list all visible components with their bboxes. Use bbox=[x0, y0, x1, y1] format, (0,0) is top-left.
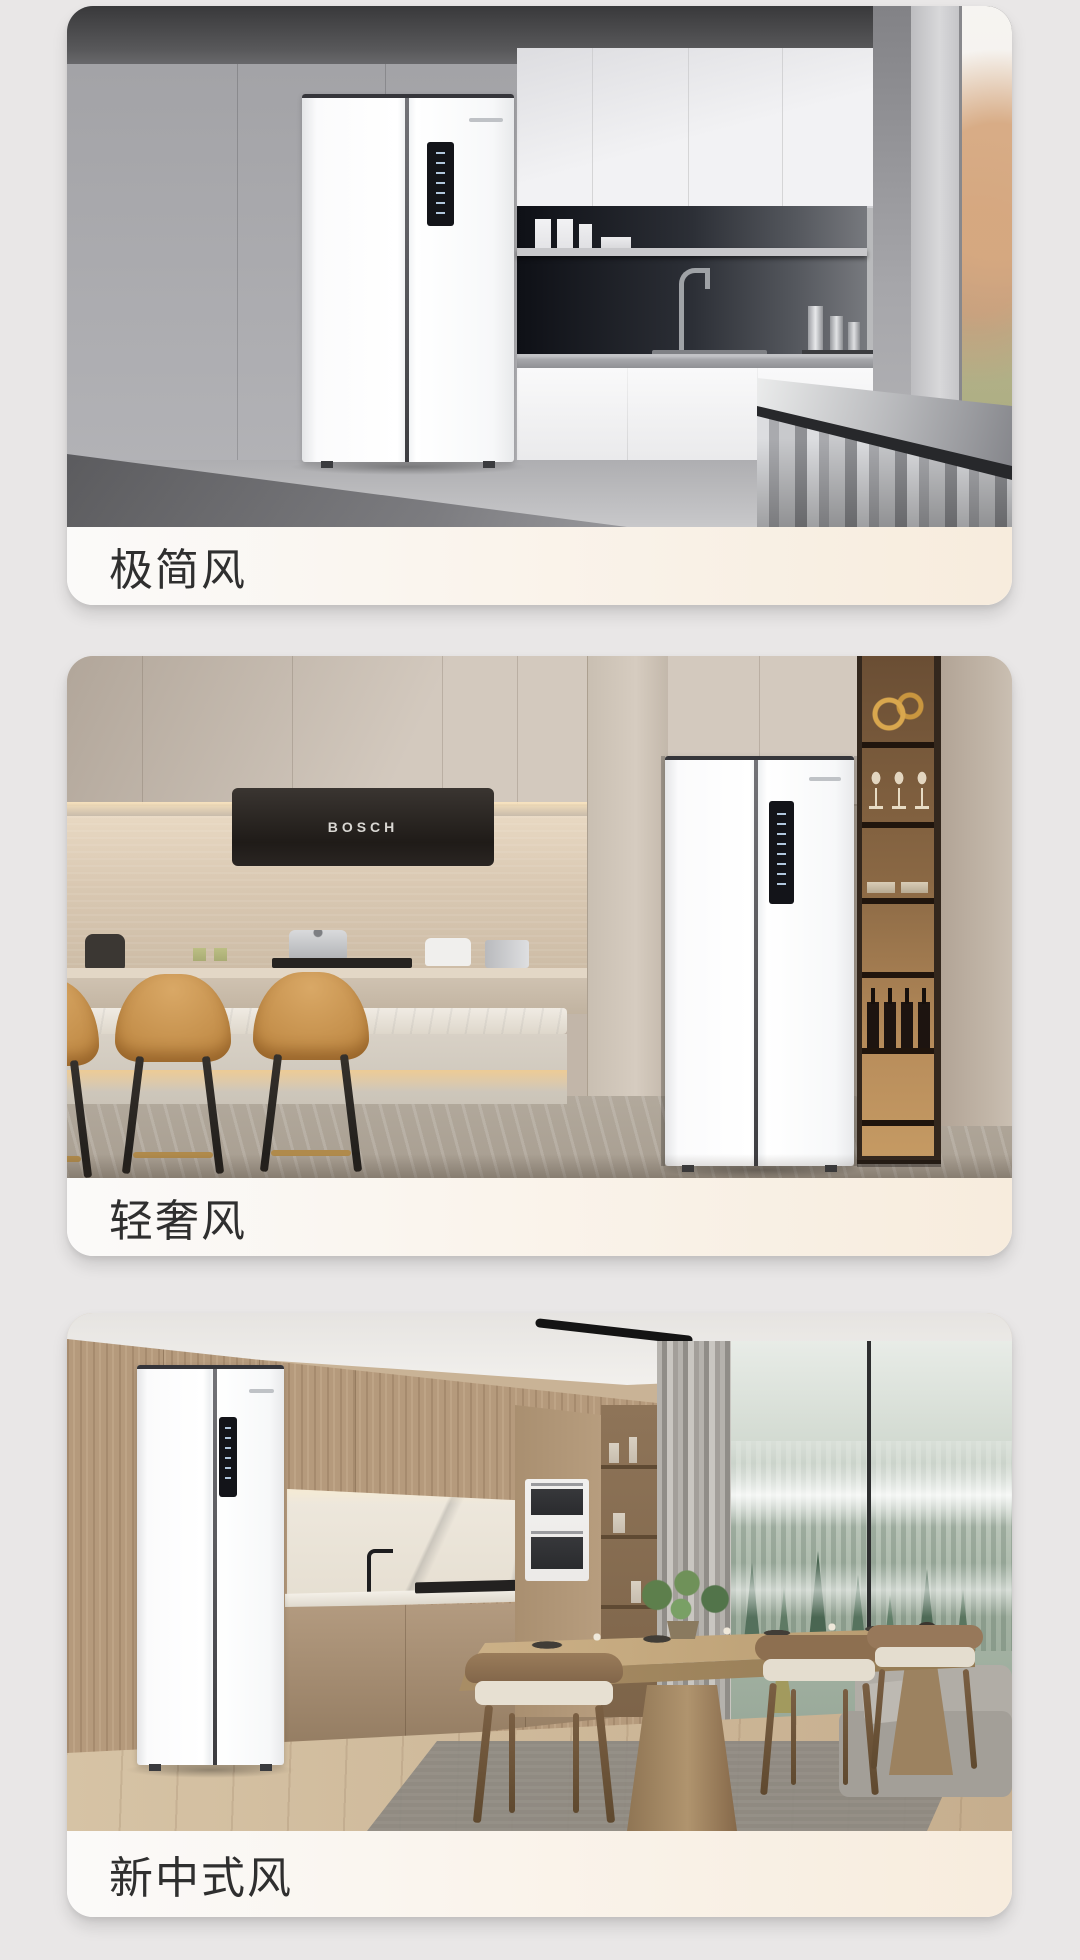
tall-beige-cabinet bbox=[587, 656, 668, 1164]
refrigerator-control-panel bbox=[427, 142, 454, 227]
refrigerator-door-gap bbox=[213, 1369, 217, 1765]
style-label-text: 极简风 bbox=[109, 534, 247, 598]
wine-glasses bbox=[865, 766, 933, 822]
chair-leg bbox=[509, 1713, 515, 1813]
refrigerator-foot bbox=[149, 1764, 161, 1771]
green-cups bbox=[193, 946, 233, 962]
kitchen-photo-new-chinese bbox=[67, 1313, 1012, 1831]
style-label: 新中式风 bbox=[67, 1831, 1012, 1917]
rice-cooker bbox=[425, 938, 471, 966]
bar-stool bbox=[253, 972, 369, 1174]
mist-band bbox=[731, 1563, 1012, 1617]
chair-back bbox=[867, 1625, 983, 1649]
bar-stool-back bbox=[67, 978, 99, 1066]
coffee-machine bbox=[485, 940, 529, 968]
chair-back bbox=[755, 1635, 885, 1661]
page: 极简风 BOSCH bbox=[0, 0, 1080, 1960]
refrigerator-door-gap bbox=[754, 760, 758, 1166]
refrigerator bbox=[665, 756, 854, 1166]
white-canisters bbox=[529, 218, 641, 248]
chair-leg bbox=[760, 1683, 777, 1795]
chair-leg bbox=[871, 1669, 886, 1769]
refrigerator bbox=[302, 94, 514, 462]
chair-leg bbox=[573, 1713, 579, 1813]
built-in-oven bbox=[525, 1479, 589, 1581]
refrigerator-control-panel bbox=[219, 1417, 237, 1497]
refrigerator-brand-logo bbox=[809, 777, 841, 781]
kitchen-photo-minimalist bbox=[67, 6, 1012, 527]
chair-leg bbox=[791, 1689, 796, 1785]
refrigerator-top-trim bbox=[137, 1365, 284, 1369]
kitchen-photo-light-luxury: BOSCH bbox=[67, 656, 1012, 1178]
countertop bbox=[517, 354, 897, 368]
chair-leg bbox=[963, 1669, 978, 1769]
window-autumn-view bbox=[962, 6, 1012, 446]
refrigerator-top-trim bbox=[665, 756, 854, 760]
dining-chair bbox=[465, 1653, 623, 1831]
style-label-text: 新中式风 bbox=[109, 1842, 293, 1906]
bar-stool bbox=[67, 978, 99, 1178]
chair-leg bbox=[843, 1689, 848, 1785]
refrigerator-foot bbox=[260, 1764, 272, 1771]
floating-shelf bbox=[517, 248, 867, 256]
bar-stool-back bbox=[115, 974, 231, 1062]
chair-cushion bbox=[475, 1681, 613, 1705]
chair-cushion bbox=[763, 1659, 875, 1681]
refrigerator-brand-logo bbox=[469, 118, 503, 122]
dining-chair bbox=[867, 1625, 983, 1775]
style-label: 轻奢风 bbox=[67, 1178, 1012, 1256]
refrigerator-brand-logo bbox=[249, 1389, 274, 1393]
bowls bbox=[865, 874, 933, 898]
gold-ring-sculpture bbox=[867, 682, 929, 738]
style-card-new-chinese: 新中式风 bbox=[67, 1313, 1012, 1917]
refrigerator-body bbox=[665, 756, 854, 1166]
style-label: 极简风 bbox=[67, 527, 1012, 605]
mist-band bbox=[731, 1463, 1012, 1527]
refrigerator-foot bbox=[321, 461, 333, 468]
refrigerator bbox=[137, 1365, 284, 1765]
refrigerator-door-gap bbox=[405, 98, 409, 462]
metal-canisters bbox=[802, 302, 877, 356]
plant-centerpiece bbox=[623, 1561, 743, 1627]
bar-stool bbox=[115, 974, 231, 1176]
black-faucet bbox=[367, 1549, 393, 1593]
wine-bottles bbox=[865, 988, 933, 1048]
refrigerator-control-panel bbox=[769, 801, 794, 904]
refrigerator-body bbox=[137, 1365, 284, 1765]
black-kettle bbox=[85, 934, 125, 970]
style-card-light-luxury: BOSCH bbox=[67, 656, 1012, 1256]
chair-back bbox=[465, 1653, 623, 1683]
upper-white-cabinets bbox=[517, 48, 873, 208]
chair-cushion bbox=[875, 1647, 975, 1667]
chair-leg bbox=[473, 1705, 493, 1823]
cooktop bbox=[272, 958, 412, 968]
side-wall bbox=[941, 656, 1012, 1126]
bar-stool-back bbox=[253, 972, 369, 1060]
dining-chair bbox=[755, 1635, 885, 1805]
refrigerator-foot bbox=[483, 461, 495, 468]
style-card-minimalist: 极简风 bbox=[67, 6, 1012, 605]
range-hood: BOSCH bbox=[232, 788, 494, 866]
faucet bbox=[679, 268, 710, 357]
style-label-text: 轻奢风 bbox=[109, 1185, 247, 1249]
chair-leg bbox=[595, 1705, 615, 1823]
floor-vignette bbox=[67, 1154, 1012, 1178]
